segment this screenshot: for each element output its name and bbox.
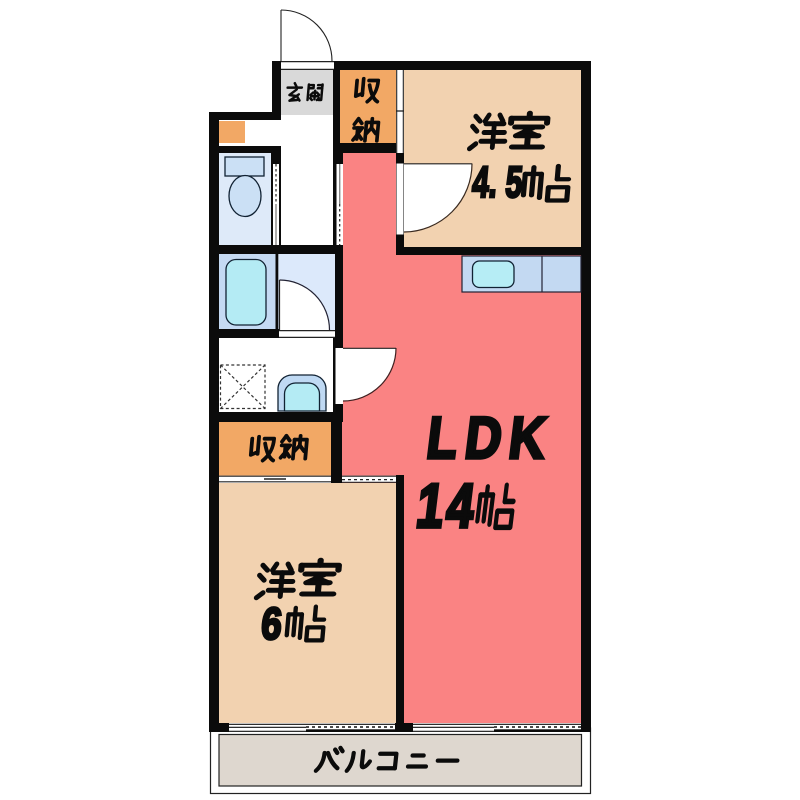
svg-text:4. 5: 4. 5	[470, 157, 524, 206]
svg-text:LDK: LDK	[423, 404, 557, 471]
svg-text:14: 14	[413, 470, 482, 540]
svg-text:6: 6	[259, 599, 284, 649]
